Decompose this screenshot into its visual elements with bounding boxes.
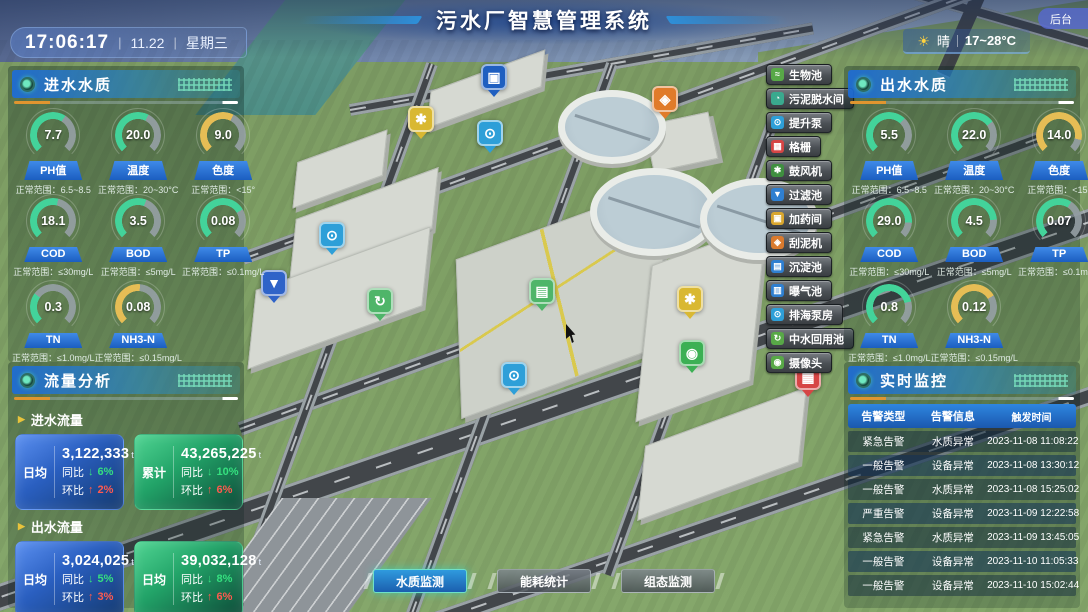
panel-title: 实时监控 bbox=[880, 370, 948, 391]
triangle-bullet-icon: ▶ bbox=[18, 414, 25, 425]
value-unit: t bbox=[259, 557, 262, 567]
clock-date: 11.22 bbox=[130, 35, 164, 51]
tab-scada-monitor[interactable]: 组态监测 bbox=[621, 569, 715, 593]
gauge-tp: 0.08 TP 正常范围：≤0.1mg/L bbox=[182, 198, 264, 282]
column-alarm-type: 告警类型 bbox=[848, 408, 919, 424]
gauge-ph: 7.7 PH值 正常范围：6.5~8.5 bbox=[12, 112, 94, 196]
reuse-marker[interactable]: ↻ bbox=[367, 288, 393, 314]
marker-icon: ⊙ bbox=[319, 222, 345, 248]
gauge-value: 0.08 bbox=[200, 198, 246, 244]
card-value: 39,032,128t bbox=[181, 553, 261, 569]
marker-glyph: ▤ bbox=[535, 283, 548, 300]
alarm-table-body: 紧急告警 水质异常 2023-11-08 11:08:22 一般告警 设备异常 … bbox=[848, 431, 1076, 596]
gauge-label: 温度 bbox=[945, 161, 1003, 180]
gauge-nh3n: 0.12 NH3-N 正常范围：≤0.15mg/L bbox=[930, 284, 1017, 368]
value-number: 39,032,128 bbox=[181, 553, 257, 569]
outlet-quality-panel: 出水水质 5.5 PH值 正常范围：6.5~8.5 22.0 温度 正常范围：2… bbox=[844, 66, 1080, 362]
alarm-type: 一般告警 bbox=[848, 458, 919, 473]
alarm-table-row: 严重告警 设备异常 2023-11-09 12:22:58 bbox=[848, 503, 1076, 524]
facility-icon: ≈ bbox=[771, 68, 784, 81]
panel-header: 进水水质 bbox=[12, 70, 240, 98]
gauge-value: 5.5 bbox=[866, 112, 912, 158]
card-value: 43,265,225t bbox=[181, 446, 261, 462]
admin-backstage-button[interactable]: 后台 bbox=[1038, 8, 1088, 29]
gauge-tn: 0.8 TN 正常范围：≤1.0mg/L bbox=[848, 284, 930, 368]
clarifier-tank-2 bbox=[590, 168, 718, 256]
card-tag: 日均 bbox=[142, 571, 166, 588]
gauge-dial: 5.5 bbox=[866, 112, 912, 158]
gauge-dial: 29.0 bbox=[866, 198, 912, 244]
facility-icon: ◈ bbox=[771, 236, 784, 249]
flow-stat-card: 日均 39,032,128t 同比 ↓ 8% 环比 ↑ 6% bbox=[134, 541, 243, 612]
gauge-label: PH值 bbox=[24, 161, 82, 180]
panel-title: 进水水质 bbox=[44, 74, 112, 95]
facility-bio-pool[interactable]: ≈ 生物池 bbox=[766, 64, 832, 85]
yoy-row: 同比 ↓ 6% bbox=[62, 464, 134, 480]
mom-label: 环比 bbox=[181, 482, 203, 498]
panel-orb-icon bbox=[856, 373, 871, 388]
mom-label: 环比 bbox=[62, 482, 84, 498]
alarm-type: 一般告警 bbox=[848, 578, 919, 593]
gauge-value: 7.7 bbox=[30, 112, 76, 158]
facility-sea-pump-house[interactable]: ⊙ 排海泵房 bbox=[766, 304, 843, 325]
gauge-tp: 0.07 TP 正常范围：≤0.1mg/L bbox=[1018, 198, 1088, 282]
panel-header: 流量分析 bbox=[12, 366, 240, 394]
facility-label: 过滤池 bbox=[789, 187, 822, 203]
gauge-color: 9.0 色度 正常范围：<15° bbox=[182, 112, 264, 196]
clock-widget: 17:06:17 | 11.22 | 星期三 bbox=[10, 27, 247, 58]
gauge-dial: 0.08 bbox=[200, 198, 246, 244]
alarm-time: 2023-11-10 11:05:33 bbox=[987, 556, 1076, 567]
gauge-label: NH3-N bbox=[945, 333, 1003, 348]
gauge-label: BOD bbox=[945, 247, 1003, 262]
facility-icon: ▥ bbox=[771, 284, 784, 297]
marker-icon: ▤ bbox=[529, 278, 555, 304]
gauge-dial: 0.08 bbox=[115, 284, 161, 330]
gauge-label: COD bbox=[860, 247, 918, 262]
mom-row: 环比 ↑ 3% bbox=[62, 589, 134, 605]
facility-label: 沉淀池 bbox=[789, 259, 822, 275]
arrow-up-icon: ↑ bbox=[88, 591, 94, 603]
arrow-down-icon: ↓ bbox=[207, 573, 213, 585]
gauge-temp: 20.0 温度 正常范围：20~30°C bbox=[94, 112, 181, 196]
realtime-monitor-panel: 实时监控 告警类型 告警信息 触发时间 紧急告警 水质异常 2023-11-08… bbox=[844, 362, 1080, 608]
filter-marker[interactable]: ▼ bbox=[261, 270, 287, 296]
pump-marker[interactable]: ⊙ bbox=[477, 120, 503, 146]
header-underline bbox=[14, 397, 238, 400]
blower-marker-2[interactable]: ✱ bbox=[677, 286, 703, 312]
gauge-value: 29.0 bbox=[866, 198, 912, 244]
gauge-dial: 0.12 bbox=[951, 284, 997, 330]
alarm-type: 严重告警 bbox=[848, 506, 919, 521]
header-underline bbox=[850, 397, 1074, 400]
mom-percent: 6% bbox=[217, 591, 233, 603]
gauge-dial: 3.5 bbox=[115, 198, 161, 244]
marker-glyph: ✱ bbox=[415, 111, 427, 128]
header-dots-decoration bbox=[178, 374, 232, 387]
alarm-time: 2023-11-08 15:25:02 bbox=[987, 484, 1076, 495]
clarifier-tank-1 bbox=[558, 90, 666, 164]
card-tag: 日均 bbox=[23, 464, 47, 481]
alarm-table-row: 一般告警 设备异常 2023-11-10 15:02:44 bbox=[848, 575, 1076, 596]
gauge-value: 4.5 bbox=[951, 198, 997, 244]
facility-icon: ◉ bbox=[771, 356, 784, 369]
gauge-normal-range: 正常范围：≤0.1mg/L bbox=[182, 265, 264, 278]
gauge-value: 0.08 bbox=[115, 284, 161, 330]
inlet-quality-panel: 进水水质 7.7 PH值 正常范围：6.5~8.5 20.0 温度 正常范围：2… bbox=[8, 66, 244, 362]
gauge-label: COD bbox=[24, 247, 82, 262]
facility-grille[interactable]: ▦ 格栅 bbox=[766, 136, 821, 157]
facility-label: 刮泥机 bbox=[789, 235, 822, 251]
flow-groups: ▶ 进水流量 日均 3,122,333t 同比 ↓ 6% 环比 ↑ 2% 累计 … bbox=[12, 403, 240, 612]
arrow-up-icon: ↑ bbox=[207, 484, 213, 496]
flow-stat-card: 日均 3,122,333t 同比 ↓ 6% 环比 ↑ 2% bbox=[15, 434, 124, 510]
gauge-value: 0.3 bbox=[30, 284, 76, 330]
card-body: 3,024,025t 同比 ↓ 5% 环比 ↑ 3% bbox=[54, 553, 134, 605]
card-body: 39,032,128t 同比 ↓ 8% 环比 ↑ 6% bbox=[173, 553, 261, 605]
facility-label: 加药间 bbox=[789, 211, 822, 227]
divider: | bbox=[118, 35, 121, 50]
facility-icon: ◔ bbox=[771, 92, 784, 105]
title-wing-right bbox=[666, 16, 791, 24]
gauge-label: 色度 bbox=[194, 161, 252, 180]
gauge-dial: 7.7 bbox=[30, 112, 76, 158]
marker-glyph: ◈ bbox=[660, 91, 671, 108]
triangle-bullet-icon: ▶ bbox=[18, 521, 25, 532]
gauge-cod: 18.1 COD 正常范围：≤30mg/L bbox=[12, 198, 94, 282]
marker-icon: ▣ bbox=[481, 64, 507, 90]
gauge-color: 14.0 色度 正常范围：<15° bbox=[1018, 112, 1088, 196]
weather-condition: 晴 bbox=[937, 31, 950, 50]
panel-header: 出水水质 bbox=[848, 70, 1076, 98]
scraper-marker[interactable]: ◈ bbox=[652, 86, 678, 112]
card-body: 3,122,333t 同比 ↓ 6% 环比 ↑ 2% bbox=[54, 446, 134, 498]
weather-divider bbox=[957, 35, 958, 47]
yoy-label: 同比 bbox=[181, 464, 203, 480]
gauge-label: BOD bbox=[109, 247, 167, 262]
gauge-dial: 22.0 bbox=[951, 112, 997, 158]
gauge-label: 色度 bbox=[1030, 161, 1088, 180]
gauge-value: 14.0 bbox=[1036, 112, 1082, 158]
tab-water-quality[interactable]: 水质监测 bbox=[373, 569, 467, 593]
blower-marker[interactable]: ✱ bbox=[408, 106, 434, 132]
alarm-info: 水质异常 bbox=[919, 482, 987, 497]
yoy-row: 同比 ↓ 5% bbox=[62, 571, 134, 587]
mom-label: 环比 bbox=[181, 589, 203, 605]
column-alarm-info: 告警信息 bbox=[919, 408, 987, 424]
facility-icon: ▼ bbox=[771, 188, 784, 201]
facility-label: 提升泵 bbox=[789, 115, 822, 131]
card-value: 3,122,333t bbox=[62, 446, 134, 462]
panel-orb-icon bbox=[20, 77, 35, 92]
marker-glyph: ▣ bbox=[487, 69, 500, 86]
facility-aeration[interactable]: ▥ 曝气池 bbox=[766, 280, 832, 301]
pump-marker-3[interactable]: ⊙ bbox=[501, 362, 527, 388]
gauge-value: 3.5 bbox=[115, 198, 161, 244]
arrow-up-icon: ↑ bbox=[207, 591, 213, 603]
alarm-type: 紧急告警 bbox=[848, 434, 919, 449]
gauge-value: 0.07 bbox=[1036, 198, 1082, 244]
gauge-dial: 4.5 bbox=[951, 198, 997, 244]
value-unit: t bbox=[259, 450, 262, 460]
yoy-label: 同比 bbox=[181, 571, 203, 587]
gauge-label: TN bbox=[24, 333, 82, 348]
facility-icon: ↻ bbox=[771, 332, 784, 345]
dosing-marker[interactable]: ▣ bbox=[481, 64, 507, 90]
alarm-table-row: 紧急告警 水质异常 2023-11-08 11:08:22 bbox=[848, 431, 1076, 452]
gauge-dial: 20.0 bbox=[115, 112, 161, 158]
divider: | bbox=[173, 35, 176, 50]
mom-percent: 3% bbox=[98, 591, 114, 603]
tab-energy-stats[interactable]: 能耗统计 bbox=[497, 569, 591, 593]
facility-lift-pump[interactable]: ⊙ 提升泵 bbox=[766, 112, 832, 133]
flow-analysis-panel: 流量分析 ▶ 进水流量 日均 3,122,333t 同比 ↓ 6% 环比 ↑ 2… bbox=[8, 362, 244, 608]
header-dots-decoration bbox=[1014, 374, 1068, 387]
facility-scraper[interactable]: ◈ 刮泥机 bbox=[766, 232, 832, 253]
marker-icon: ✱ bbox=[677, 286, 703, 312]
flow-group-title: ▶ 进水流量 bbox=[18, 410, 238, 429]
flow-group: ▶ 出水流量 日均 3,024,025t 同比 ↓ 5% 环比 ↑ 3% 日均 … bbox=[12, 510, 240, 612]
facility-icon: ▣ bbox=[771, 212, 784, 225]
marker-icon: ✱ bbox=[408, 106, 434, 132]
header-title-bar: 污水厂智慧管理系统 bbox=[300, 5, 788, 35]
marker-glyph: ⊙ bbox=[508, 367, 520, 384]
value-number: 3,122,333 bbox=[62, 446, 129, 462]
alarm-type: 紧急告警 bbox=[848, 530, 919, 545]
gauge-value: 18.1 bbox=[30, 198, 76, 244]
card-tag: 日均 bbox=[23, 571, 47, 588]
facility-camera[interactable]: ◉ 摄像头 bbox=[766, 352, 832, 373]
value-number: 43,265,225 bbox=[181, 446, 257, 462]
value-number: 3,024,025 bbox=[62, 553, 129, 569]
gauge-label: TP bbox=[1030, 247, 1088, 262]
gauge-dial: 18.1 bbox=[30, 198, 76, 244]
marker-glyph: ✱ bbox=[684, 291, 696, 308]
alarm-table-row: 一般告警 设备异常 2023-11-10 11:05:33 bbox=[848, 551, 1076, 572]
alarm-time: 2023-11-09 13:45:05 bbox=[987, 532, 1076, 543]
facility-label: 污泥脱水间 bbox=[789, 91, 844, 107]
facility-label: 排海泵房 bbox=[789, 307, 833, 323]
flow-stat-card: 日均 3,024,025t 同比 ↓ 5% 环比 ↑ 3% bbox=[15, 541, 124, 612]
gauge-normal-range: 正常范围：≤5mg/L bbox=[937, 265, 1012, 278]
gauge-label: 温度 bbox=[109, 161, 167, 180]
tab-label: 组态监测 bbox=[644, 573, 692, 590]
alarm-info: 设备异常 bbox=[919, 506, 987, 521]
gauge-cod: 29.0 COD 正常范围：≤30mg/L bbox=[848, 198, 930, 282]
facility-icon: ⊙ bbox=[771, 116, 784, 129]
title-wing-left bbox=[298, 16, 423, 24]
header-dots-decoration bbox=[178, 78, 232, 91]
gauge-dial: 0.07 bbox=[1036, 198, 1082, 244]
facility-dosing-room[interactable]: ▣ 加药间 bbox=[766, 208, 832, 229]
flow-group: ▶ 进水流量 日均 3,122,333t 同比 ↓ 6% 环比 ↑ 2% 累计 … bbox=[12, 403, 240, 510]
weather-temp-range: 17~28°C bbox=[965, 33, 1016, 48]
facility-sludge-dewatering[interactable]: ◔ 污泥脱水间 bbox=[766, 88, 854, 109]
alarm-type: 一般告警 bbox=[848, 554, 919, 569]
marker-icon: ◉ bbox=[679, 340, 705, 366]
gauge-dial: 0.3 bbox=[30, 284, 76, 330]
alarm-type: 一般告警 bbox=[848, 482, 919, 497]
column-trigger-time: 触发时间 bbox=[987, 409, 1076, 424]
marker-icon: ⊙ bbox=[477, 120, 503, 146]
card-tag: 累计 bbox=[142, 464, 166, 481]
dashboard-root: ✱ ⊙ ▣ ◈ ⊙ ▼ ↻ ▤ ✱ ◉ ▦ ⊙ 污水厂智慧管理系统 17:06:… bbox=[0, 0, 1088, 612]
gauge-normal-range: 正常范围：≤5mg/L bbox=[101, 265, 176, 278]
app-title: 污水厂智慧管理系统 bbox=[436, 5, 652, 35]
mom-label: 环比 bbox=[62, 589, 84, 605]
alarm-time: 2023-11-08 11:08:22 bbox=[987, 436, 1076, 447]
gauge-dial: 14.0 bbox=[1036, 112, 1082, 158]
facility-filter-pool[interactable]: ▼ 过滤池 bbox=[766, 184, 832, 205]
alarm-time: 2023-11-10 15:02:44 bbox=[987, 580, 1076, 591]
gauge-normal-range: 正常范围：≤0.1mg/L bbox=[1018, 265, 1088, 278]
facility-icon: ▦ bbox=[771, 140, 784, 153]
arrow-down-icon: ↓ bbox=[88, 573, 94, 585]
card-body: 43,265,225t 同比 ↓ 10% 环比 ↑ 6% bbox=[173, 446, 261, 498]
gauge-value: 22.0 bbox=[951, 112, 997, 158]
gauge-tn: 0.3 TN 正常范围：≤1.0mg/L bbox=[12, 284, 94, 368]
gauge-bod: 4.5 BOD 正常范围：≤5mg/L bbox=[930, 198, 1017, 282]
facility-label: 曝气池 bbox=[789, 283, 822, 299]
facility-icon: ▤ bbox=[771, 260, 784, 273]
yoy-row: 同比 ↓ 10% bbox=[181, 464, 261, 480]
alarm-table-row: 紧急告警 水质异常 2023-11-09 13:45:05 bbox=[848, 527, 1076, 548]
marker-glyph: ⊙ bbox=[484, 125, 496, 142]
gauge-label: TP bbox=[194, 247, 252, 262]
clock-weekday: 星期三 bbox=[186, 33, 228, 53]
flow-stat-card: 累计 43,265,225t 同比 ↓ 10% 环比 ↑ 6% bbox=[134, 434, 243, 510]
marker-glyph: ▼ bbox=[267, 275, 281, 291]
header-underline bbox=[850, 101, 1074, 104]
gauge-label: NH3-N bbox=[109, 333, 167, 348]
facility-blower[interactable]: ✱ 鼓风机 bbox=[766, 160, 832, 181]
gauge-value: 9.0 bbox=[200, 112, 246, 158]
marker-icon: ◈ bbox=[652, 86, 678, 112]
inlet-gauge-grid: 7.7 PH值 正常范围：6.5~8.5 20.0 温度 正常范围：20~30°… bbox=[12, 107, 240, 368]
gauge-label: TN bbox=[860, 333, 918, 348]
gauge-value: 0.12 bbox=[951, 284, 997, 330]
gauge-bod: 3.5 BOD 正常范围：≤5mg/L bbox=[94, 198, 181, 282]
flow-group-label: 出水流量 bbox=[31, 517, 83, 536]
alarm-time: 2023-11-08 13:30:12 bbox=[987, 460, 1076, 471]
alarm-info: 设备异常 bbox=[919, 578, 987, 593]
yoy-percent: 8% bbox=[217, 573, 233, 585]
gauge-dial: 0.8 bbox=[866, 284, 912, 330]
panel-orb-icon bbox=[856, 77, 871, 92]
alarm-info: 设备异常 bbox=[919, 458, 987, 473]
panel-title: 流量分析 bbox=[44, 370, 112, 391]
gauge-temp: 22.0 温度 正常范围：20~30°C bbox=[930, 112, 1017, 196]
flow-cards: 日均 3,122,333t 同比 ↓ 6% 环比 ↑ 2% 累计 43,265,… bbox=[14, 434, 238, 510]
alarm-table-row: 一般告警 水质异常 2023-11-08 15:25:02 bbox=[848, 479, 1076, 500]
marker-icon: ▼ bbox=[261, 270, 287, 296]
arrow-down-icon: ↓ bbox=[207, 466, 213, 478]
mom-row: 环比 ↑ 6% bbox=[181, 482, 261, 498]
facility-label: 中水回用池 bbox=[789, 331, 844, 347]
facility-button-stack: ≈ 生物池 ◔ 污泥脱水间 ⊙ 提升泵 ▦ 格栅 ✱ 鼓风机 ▼ 过滤池 ▣ 加… bbox=[766, 64, 854, 373]
header-dots-decoration bbox=[1014, 78, 1068, 91]
yoy-percent: 6% bbox=[98, 466, 114, 478]
bottom-tab-bar: 水质监测 能耗统计 组态监测 bbox=[373, 569, 715, 593]
mom-row: 环比 ↑ 6% bbox=[181, 589, 261, 605]
facility-icon: ⊙ bbox=[771, 308, 784, 321]
marker-glyph: ↻ bbox=[374, 293, 386, 310]
alarm-table-header: 告警类型 告警信息 触发时间 bbox=[848, 404, 1076, 428]
gauge-nh3n: 0.08 NH3-N 正常范围：≤0.15mg/L bbox=[94, 284, 181, 368]
alarm-time: 2023-11-09 12:22:58 bbox=[987, 508, 1076, 519]
mom-percent: 6% bbox=[217, 484, 233, 496]
weather-widget: ☀ 晴 17~28°C bbox=[903, 29, 1030, 54]
yoy-row: 同比 ↓ 8% bbox=[181, 571, 261, 587]
alarm-table-row: 一般告警 设备异常 2023-11-08 13:30:12 bbox=[848, 455, 1076, 476]
flow-cards: 日均 3,024,025t 同比 ↓ 5% 环比 ↑ 3% 日均 39,032,… bbox=[14, 541, 238, 612]
gauge-value: 20.0 bbox=[115, 112, 161, 158]
alarm-info: 设备异常 bbox=[919, 554, 987, 569]
facility-sedimentation[interactable]: ▤ 沉淀池 bbox=[766, 256, 832, 277]
facility-icon: ✱ bbox=[771, 164, 784, 177]
camera-marker[interactable]: ◉ bbox=[679, 340, 705, 366]
gauge-value: 0.8 bbox=[866, 284, 912, 330]
panel-header: 实时监控 bbox=[848, 366, 1076, 394]
alarm-info: 水质异常 bbox=[919, 434, 987, 449]
yoy-label: 同比 bbox=[62, 571, 84, 587]
tab-label: 水质监测 bbox=[396, 573, 444, 590]
flow-group-label: 进水流量 bbox=[31, 410, 83, 429]
yoy-percent: 10% bbox=[217, 466, 239, 478]
panel-title: 出水水质 bbox=[880, 74, 948, 95]
facility-label: 摄像头 bbox=[789, 355, 822, 371]
marker-glyph: ⊙ bbox=[326, 227, 338, 244]
card-value: 3,024,025t bbox=[62, 553, 134, 569]
marker-icon: ⊙ bbox=[501, 362, 527, 388]
facility-label: 鼓风机 bbox=[789, 163, 822, 179]
yoy-label: 同比 bbox=[62, 464, 84, 480]
clock-time: 17:06:17 bbox=[25, 32, 109, 54]
gauge-normal-range: 正常范围：≤30mg/L bbox=[849, 265, 929, 278]
arrow-down-icon: ↓ bbox=[88, 466, 94, 478]
facility-label: 生物池 bbox=[789, 67, 822, 83]
pump-marker-2[interactable]: ⊙ bbox=[319, 222, 345, 248]
facility-reuse-pool[interactable]: ↻ 中水回用池 bbox=[766, 328, 854, 349]
header-underline bbox=[14, 101, 238, 104]
marker-glyph: ◉ bbox=[686, 345, 698, 362]
yoy-percent: 5% bbox=[98, 573, 114, 585]
marker-icon: ↻ bbox=[367, 288, 393, 314]
panel-orb-icon bbox=[20, 373, 35, 388]
mom-row: 环比 ↑ 2% bbox=[62, 482, 134, 498]
outlet-gauge-grid: 5.5 PH值 正常范围：6.5~8.5 22.0 温度 正常范围：20~30°… bbox=[848, 107, 1076, 368]
tab-label: 能耗统计 bbox=[520, 573, 568, 590]
arrow-up-icon: ↑ bbox=[88, 484, 94, 496]
alarm-info: 水质异常 bbox=[919, 530, 987, 545]
gauge-ph: 5.5 PH值 正常范围：6.5~8.5 bbox=[848, 112, 930, 196]
gauge-normal-range: 正常范围：≤30mg/L bbox=[13, 265, 93, 278]
mom-percent: 2% bbox=[98, 484, 114, 496]
gauge-dial: 9.0 bbox=[200, 112, 246, 158]
gauge-label: PH值 bbox=[860, 161, 918, 180]
bio-marker[interactable]: ▤ bbox=[529, 278, 555, 304]
flow-group-title: ▶ 出水流量 bbox=[18, 517, 238, 536]
sun-icon: ☀ bbox=[917, 34, 930, 48]
facility-label: 格栅 bbox=[789, 139, 811, 155]
